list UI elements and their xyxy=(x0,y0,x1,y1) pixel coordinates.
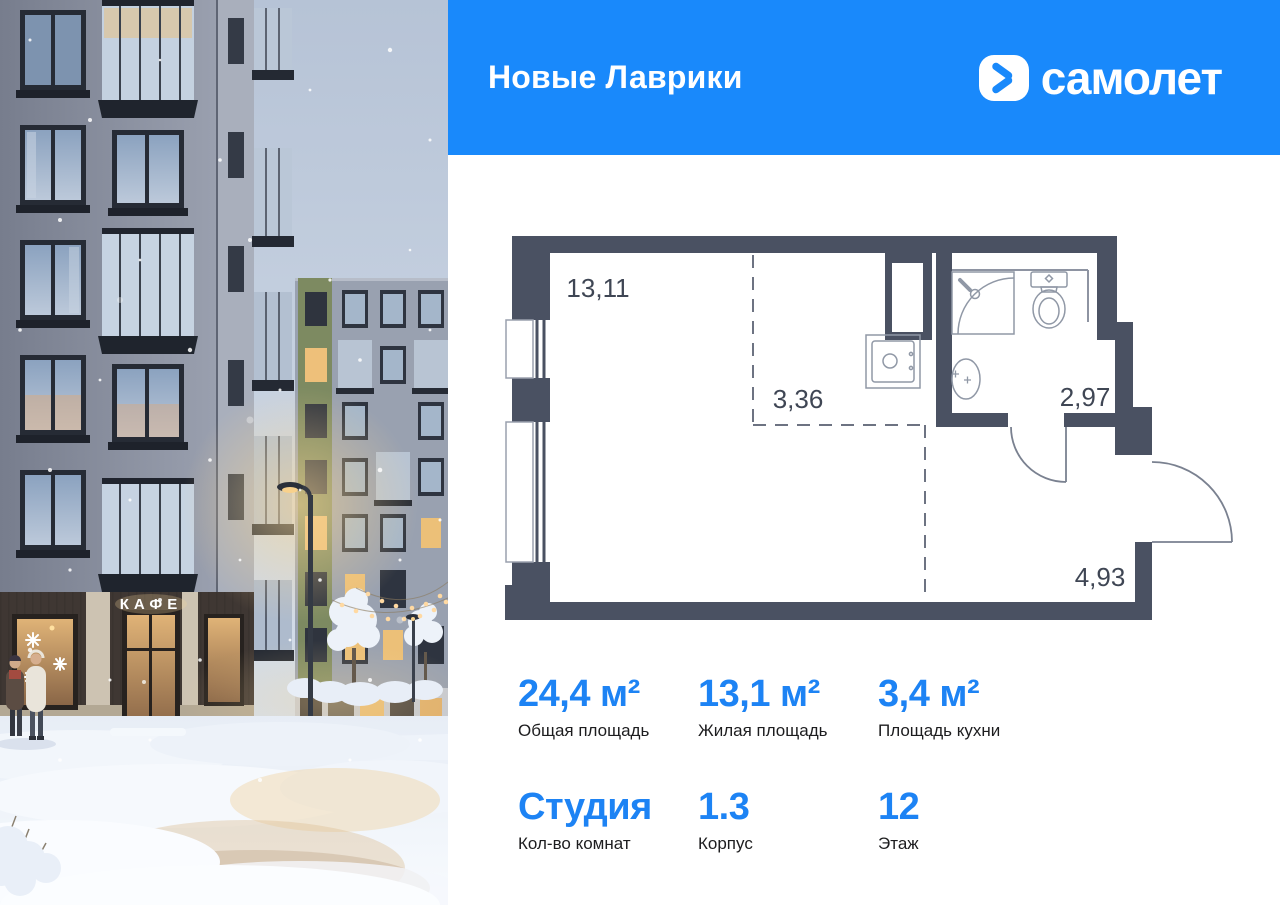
stat-label: Жилая площадь xyxy=(698,721,878,741)
brand-name: самолет xyxy=(1041,51,1222,105)
lamp-glow xyxy=(182,387,418,623)
room-area-label-entry: 4,93 xyxy=(1075,562,1126,592)
apartment-stats: 24,4 м² Общая площадь 13,1 м² Жилая площ… xyxy=(518,674,1058,854)
stat-value: 13,1 м² xyxy=(698,674,878,716)
shower xyxy=(952,272,1014,334)
window xyxy=(506,422,546,562)
washing-machine xyxy=(866,335,920,388)
stat-label: Кол-во комнат xyxy=(518,834,698,854)
stat-kitchen-area: 3,4 м² Площадь кухни xyxy=(878,674,1058,741)
duct-shaft xyxy=(892,263,923,332)
stat-value: 1.3 xyxy=(698,787,878,829)
stat-living-area: 13,1 м² Жилая площадь xyxy=(698,674,878,741)
stat-label: Общая площадь xyxy=(518,721,698,741)
brand-logo: самолет xyxy=(979,51,1222,105)
entrance-door xyxy=(1152,462,1232,542)
room-area-label-bathroom: 2,97 xyxy=(1060,382,1111,412)
stat-building: 1.3 Корпус xyxy=(698,787,878,854)
stat-rooms: Студия Кол-во комнат xyxy=(518,787,698,854)
stat-label: Этаж xyxy=(878,834,1058,854)
project-title: Новые Лаврики xyxy=(488,59,743,96)
stat-label: Корпус xyxy=(698,834,878,854)
foreground-building: КАФЕ xyxy=(0,0,294,735)
room-area-label-living: 13,11 xyxy=(566,273,629,303)
window-column xyxy=(16,10,90,558)
cafe-door xyxy=(122,610,180,734)
stat-value: 12 xyxy=(878,787,1058,829)
building-photo: КАФЕ xyxy=(0,0,448,905)
toilet xyxy=(1031,272,1067,328)
snow-ground xyxy=(0,716,448,905)
floor-plan: 13,11 3,36 2,97 4,93 xyxy=(496,230,1236,630)
stat-floor: 12 Этаж xyxy=(878,787,1058,854)
stat-value: 24,4 м² xyxy=(518,674,698,716)
sink xyxy=(952,359,980,399)
stat-total-area: 24,4 м² Общая площадь xyxy=(518,674,698,741)
bathroom-door xyxy=(1011,427,1066,482)
listing-card: КАФЕ xyxy=(0,0,1280,905)
cafe-sign: КАФЕ xyxy=(120,596,182,613)
samolet-logo-icon xyxy=(979,55,1029,101)
stat-label: Площадь кухни xyxy=(878,721,1058,741)
stat-value: Студия xyxy=(518,787,698,829)
header: Новые Лаврики самолет xyxy=(448,0,1280,155)
info-panel: Новые Лаврики самолет xyxy=(448,0,1280,905)
room-area-label-hall: 3,36 xyxy=(773,384,824,414)
stat-value: 3,4 м² xyxy=(878,674,1058,716)
window xyxy=(506,320,546,378)
